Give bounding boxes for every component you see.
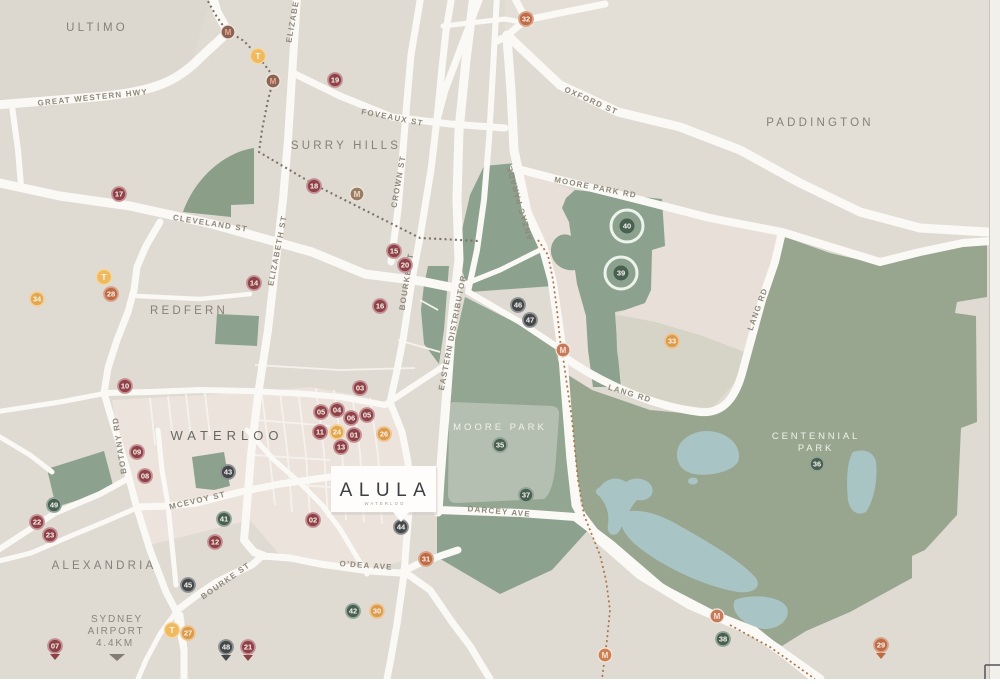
svg-text:03: 03 bbox=[356, 384, 364, 393]
svg-text:MOORE PARK: MOORE PARK bbox=[453, 422, 547, 433]
svg-text:22: 22 bbox=[33, 518, 41, 527]
svg-text:AIRPORT: AIRPORT bbox=[88, 626, 145, 637]
svg-text:32: 32 bbox=[522, 15, 530, 24]
svg-text:06: 06 bbox=[347, 414, 355, 423]
svg-text:4.4KM: 4.4KM bbox=[96, 638, 134, 649]
svg-text:05: 05 bbox=[363, 411, 371, 420]
svg-text:PARK: PARK bbox=[798, 443, 834, 454]
svg-text:17: 17 bbox=[115, 190, 123, 199]
svg-text:48: 48 bbox=[222, 643, 230, 652]
svg-text:40: 40 bbox=[623, 222, 631, 231]
svg-text:M: M bbox=[225, 28, 232, 37]
svg-text:SURRY HILLS: SURRY HILLS bbox=[291, 140, 401, 152]
svg-text:33: 33 bbox=[668, 337, 676, 346]
svg-text:18: 18 bbox=[310, 182, 318, 191]
svg-text:CENTENNIAL: CENTENNIAL bbox=[772, 431, 860, 442]
svg-text:M: M bbox=[354, 190, 361, 199]
svg-text:01: 01 bbox=[350, 431, 358, 440]
svg-text:WATERLOO: WATERLOO bbox=[171, 428, 284, 443]
svg-text:46: 46 bbox=[514, 301, 522, 310]
svg-text:ULTIMO: ULTIMO bbox=[66, 22, 128, 34]
svg-text:23: 23 bbox=[46, 531, 54, 540]
svg-text:38: 38 bbox=[719, 635, 727, 644]
svg-text:26: 26 bbox=[380, 430, 388, 439]
svg-text:T: T bbox=[102, 273, 107, 282]
svg-text:08: 08 bbox=[141, 472, 149, 481]
svg-text:14: 14 bbox=[250, 279, 259, 288]
svg-text:12: 12 bbox=[211, 538, 219, 547]
svg-text:41: 41 bbox=[220, 515, 228, 524]
svg-text:M: M bbox=[714, 612, 721, 621]
svg-text:ALULA: ALULA bbox=[340, 480, 433, 501]
svg-text:24: 24 bbox=[333, 428, 342, 437]
svg-text:39: 39 bbox=[617, 269, 625, 278]
svg-text:21: 21 bbox=[244, 643, 252, 652]
svg-text:ALEXANDRIA: ALEXANDRIA bbox=[52, 560, 157, 572]
svg-text:47: 47 bbox=[526, 316, 534, 325]
svg-text:T: T bbox=[170, 626, 175, 635]
svg-text:34: 34 bbox=[33, 295, 42, 304]
svg-text:10: 10 bbox=[121, 382, 129, 391]
svg-text:19: 19 bbox=[331, 76, 339, 85]
svg-text:WATERLOO: WATERLOO bbox=[364, 501, 405, 506]
svg-text:42: 42 bbox=[349, 607, 357, 616]
svg-text:11: 11 bbox=[316, 428, 324, 437]
svg-text:49: 49 bbox=[50, 501, 58, 510]
svg-text:15: 15 bbox=[390, 247, 398, 256]
svg-text:PADDINGTON: PADDINGTON bbox=[766, 117, 874, 129]
svg-text:REDFERN: REDFERN bbox=[150, 305, 228, 317]
svg-text:T: T bbox=[256, 52, 261, 61]
svg-text:05: 05 bbox=[317, 408, 325, 417]
svg-text:45: 45 bbox=[184, 581, 192, 590]
svg-text:35: 35 bbox=[496, 441, 504, 450]
svg-text:28: 28 bbox=[107, 290, 115, 299]
svg-text:29: 29 bbox=[877, 641, 885, 650]
svg-text:27: 27 bbox=[184, 629, 192, 638]
svg-text:30: 30 bbox=[373, 607, 381, 616]
svg-text:M: M bbox=[602, 651, 609, 660]
svg-text:SYDNEY: SYDNEY bbox=[91, 614, 143, 625]
svg-text:04: 04 bbox=[333, 406, 342, 415]
svg-text:16: 16 bbox=[376, 302, 384, 311]
svg-text:M: M bbox=[560, 346, 567, 355]
svg-text:36: 36 bbox=[813, 460, 821, 469]
svg-text:02: 02 bbox=[309, 516, 317, 525]
svg-text:44: 44 bbox=[397, 523, 406, 532]
svg-text:31: 31 bbox=[422, 555, 430, 564]
svg-text:M: M bbox=[270, 77, 277, 86]
svg-text:09: 09 bbox=[133, 448, 141, 457]
svg-text:13: 13 bbox=[337, 443, 345, 452]
svg-text:20: 20 bbox=[401, 261, 409, 270]
svg-text:37: 37 bbox=[522, 491, 530, 500]
svg-text:07: 07 bbox=[51, 642, 59, 651]
svg-text:43: 43 bbox=[224, 468, 232, 477]
